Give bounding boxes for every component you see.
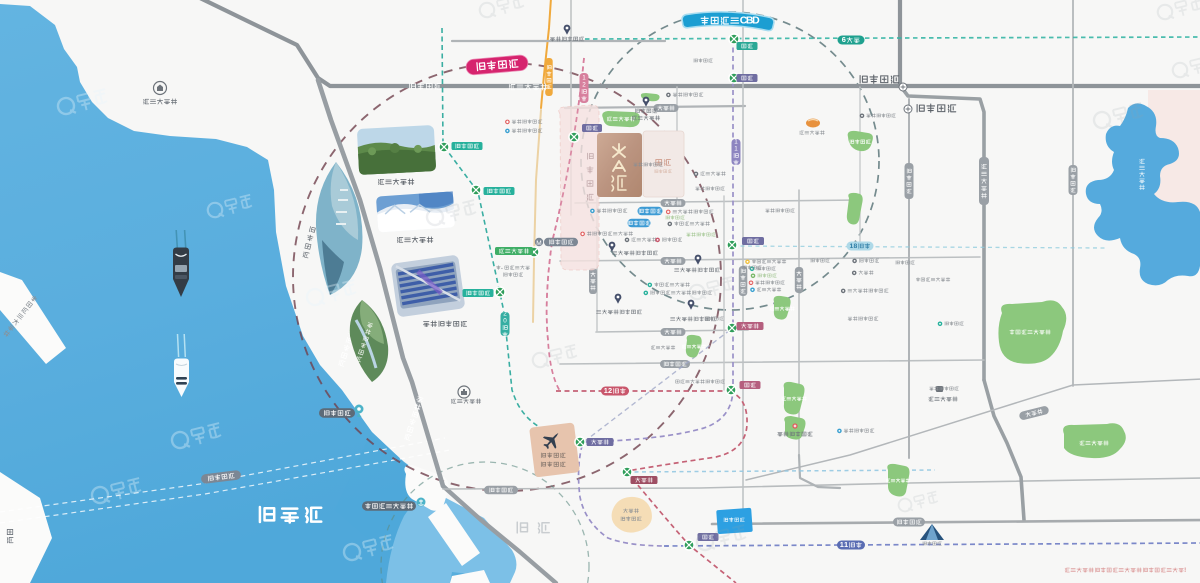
svg-text:D: D <box>752 15 760 27</box>
svg-text:!: ! <box>1184 567 1186 574</box>
svg-text:2: 2 <box>582 82 586 89</box>
svg-text:0: 0 <box>503 318 507 325</box>
svg-text:2: 2 <box>503 311 507 318</box>
svg-text:2: 2 <box>608 386 612 395</box>
svg-text:M: M <box>536 240 541 247</box>
svg-text:1: 1 <box>734 146 738 153</box>
svg-text:1: 1 <box>844 540 848 549</box>
svg-text:1: 1 <box>734 139 738 146</box>
svg-text:6: 6 <box>842 35 846 44</box>
svg-text:-: - <box>501 265 503 271</box>
svg-text:8: 8 <box>854 243 858 250</box>
